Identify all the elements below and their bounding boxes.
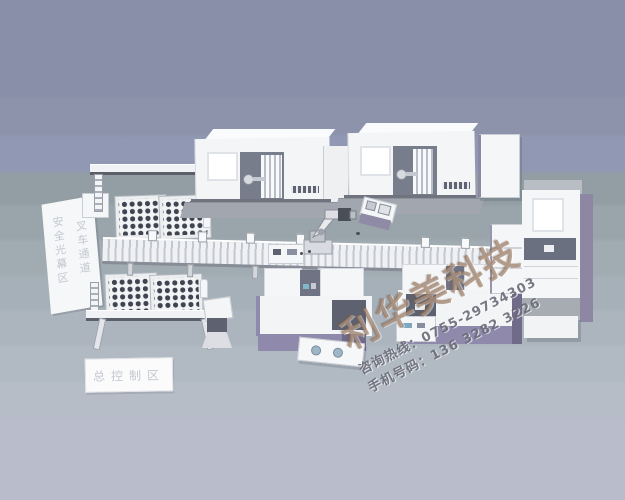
loose-part [308,250,311,253]
operator-stand [202,298,234,352]
controller-detail [287,249,297,255]
stand-column [207,318,227,333]
machine-bottom-block [524,316,578,338]
robot-controller-box [268,244,304,264]
conveyor-leg [127,263,133,276]
machine-window [532,198,564,232]
sensor-stand [200,279,208,298]
machine-work-opening [393,146,437,196]
gantry-post-top [94,174,103,212]
spindle-bar [406,172,417,176]
machine-window [360,146,391,176]
factory-layout-render: 安全光幕区 叉车通道 总控制区 [0,0,625,500]
cnc-lathe-b [338,120,488,214]
conveyor-stopper [246,232,255,243]
machine-work-opening [240,152,284,200]
spindle-bar [253,177,265,181]
fixture-part [544,245,554,252]
electrical-cabinet [478,134,520,198]
console-button [311,345,322,356]
conveyor-leg [187,264,193,277]
interior-detail [311,283,316,289]
interior-detail [303,284,309,289]
conveyor-stopper [148,230,157,241]
zone-label-safety-light-curtain: 安全光幕区 [49,215,71,288]
fixture-part [415,304,425,310]
console-detail [402,323,412,328]
machine-interior [300,270,320,298]
machine-window [207,152,238,181]
machine-opening [332,300,366,330]
controller-detail [273,249,281,255]
panel-seam [524,266,578,267]
gantry-post-bottom [90,282,99,312]
machine-control-strip [442,182,470,189]
gantry-leg [93,318,107,351]
rack-shelf [492,267,522,269]
panel-seam [524,278,578,279]
zone-label-master-control: 总控制区 [93,366,165,384]
machine-opening [524,238,576,260]
conveyor-stopper [421,237,430,248]
tall-machine [520,180,594,342]
machine-interior [446,266,464,292]
console-button [332,347,343,358]
console-detail [417,323,425,328]
rack-shelf [492,247,522,249]
machine-console [396,316,436,342]
stand-base [202,332,232,348]
conveyor-stopper [198,231,207,242]
zone-sign-master-control: 总控制区 [85,357,174,393]
loose-part [300,252,303,255]
machine-base-band [522,298,580,316]
machine-side-face [580,194,593,322]
loose-part [356,232,360,235]
conveyor-stopper [461,238,470,249]
zone-label-forklift-channel: 叉车通道 [72,219,93,278]
machine-control-strip [291,186,319,193]
